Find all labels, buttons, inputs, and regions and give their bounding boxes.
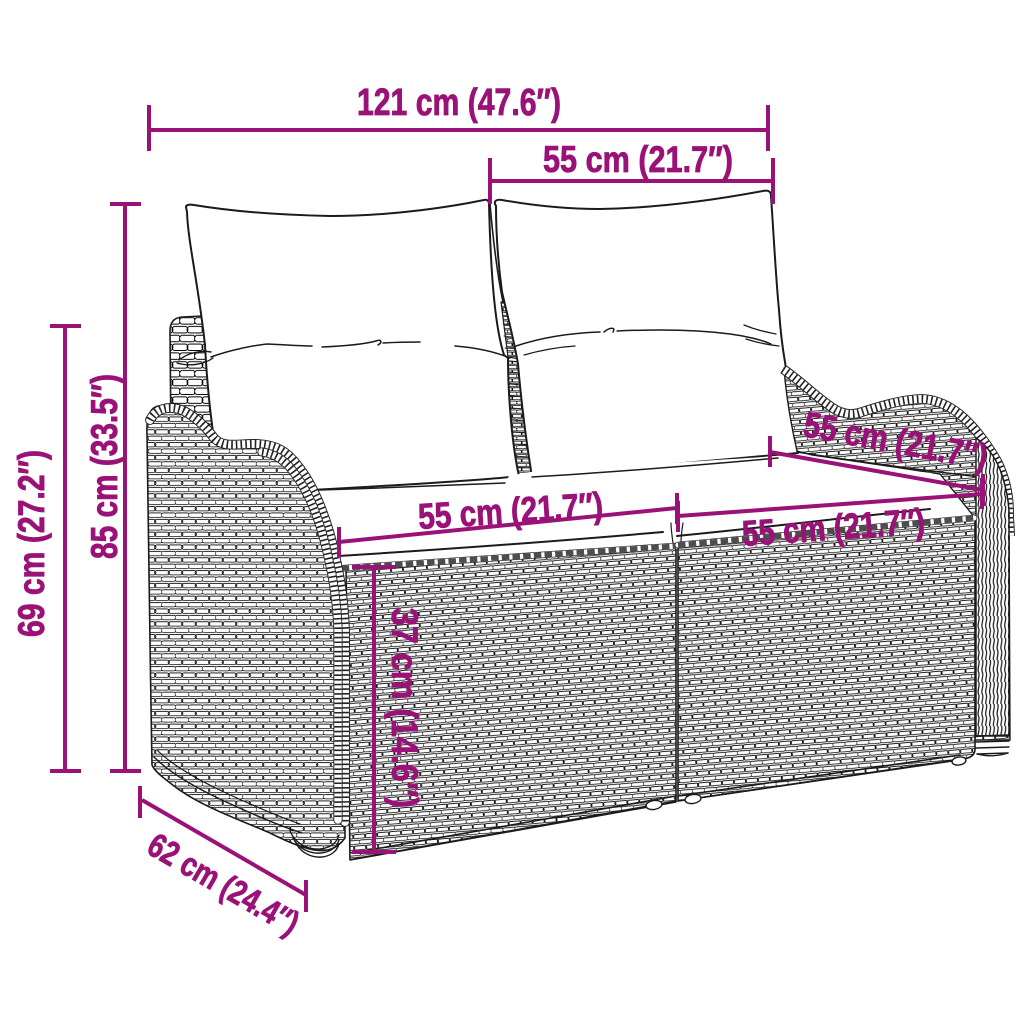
svg-text:85 cm (33.5″): 85 cm (33.5″): [84, 374, 125, 559]
svg-text:37 cm (14.6″): 37 cm (14.6″): [384, 608, 425, 808]
svg-text:121 cm (47.6″): 121 cm (47.6″): [357, 82, 561, 124]
svg-text:69 cm (27.2″): 69 cm (27.2″): [11, 450, 52, 637]
svg-text:55 cm (21.7″): 55 cm (21.7″): [543, 139, 733, 180]
